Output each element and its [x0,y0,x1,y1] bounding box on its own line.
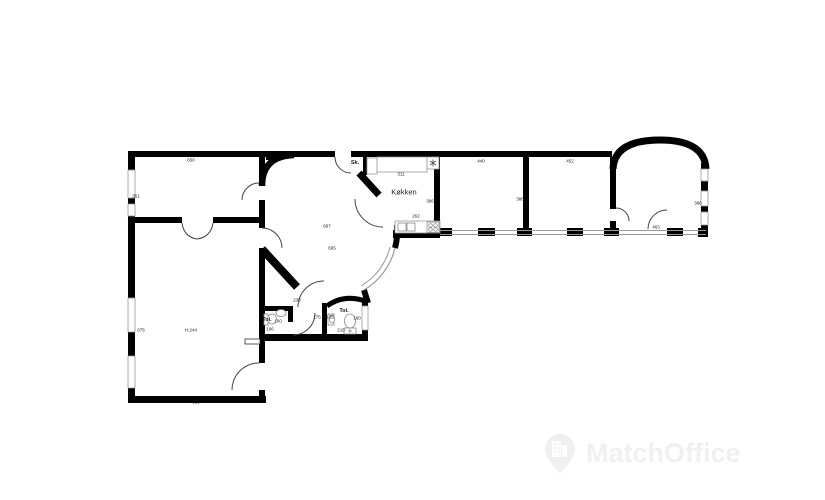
label-toilet-right-a: 175 [313,315,321,320]
label-kitchen-counter-top: 311 [397,172,404,177]
floor-plan-page: MatchOffice 650 351 875 H:244 650 667 66… [0,0,825,500]
label-room-a-depth: 386 [516,197,524,202]
plan-labels: 650 351 875 H:244 650 667 665 Sk. Køkken… [0,0,825,500]
label-kitchen: Køkken [391,188,416,197]
label-top-room-depth: 351 [132,194,140,199]
label-room-b-width: 452 [566,159,574,164]
label-large-room-depth: 875 [137,328,145,333]
label-closet: Sk. [351,160,359,166]
label-round-room-dim-a: 667 [323,224,331,229]
label-toilet-right-d: 210 [337,328,345,333]
label-round-room-dim-b: 665 [328,246,336,251]
label-kitchen-counter-bottom: 262 [412,214,420,219]
label-top-room-width: 650 [187,158,195,163]
label-tower-door-width: 463 [652,225,660,230]
label-toilet-right-b: 135 [326,315,334,320]
label-ceiling-height: H:244 [185,328,197,333]
label-room-a-width: 440 [477,159,485,164]
label-tower-depth: 386 [694,201,702,206]
label-toilet-right-c: 160 [353,316,361,321]
label-hallway-width: 238 [293,298,301,303]
label-large-room-width: 650 [192,400,200,405]
label-toilet-left-width: 100 [274,319,282,324]
label-toilet-left: Toi. [262,317,271,323]
label-toilet-right: Toi. [339,308,348,314]
label-toilet-left-depth: 106 [266,327,274,332]
label-kitchen-depth: 386 [426,199,434,204]
